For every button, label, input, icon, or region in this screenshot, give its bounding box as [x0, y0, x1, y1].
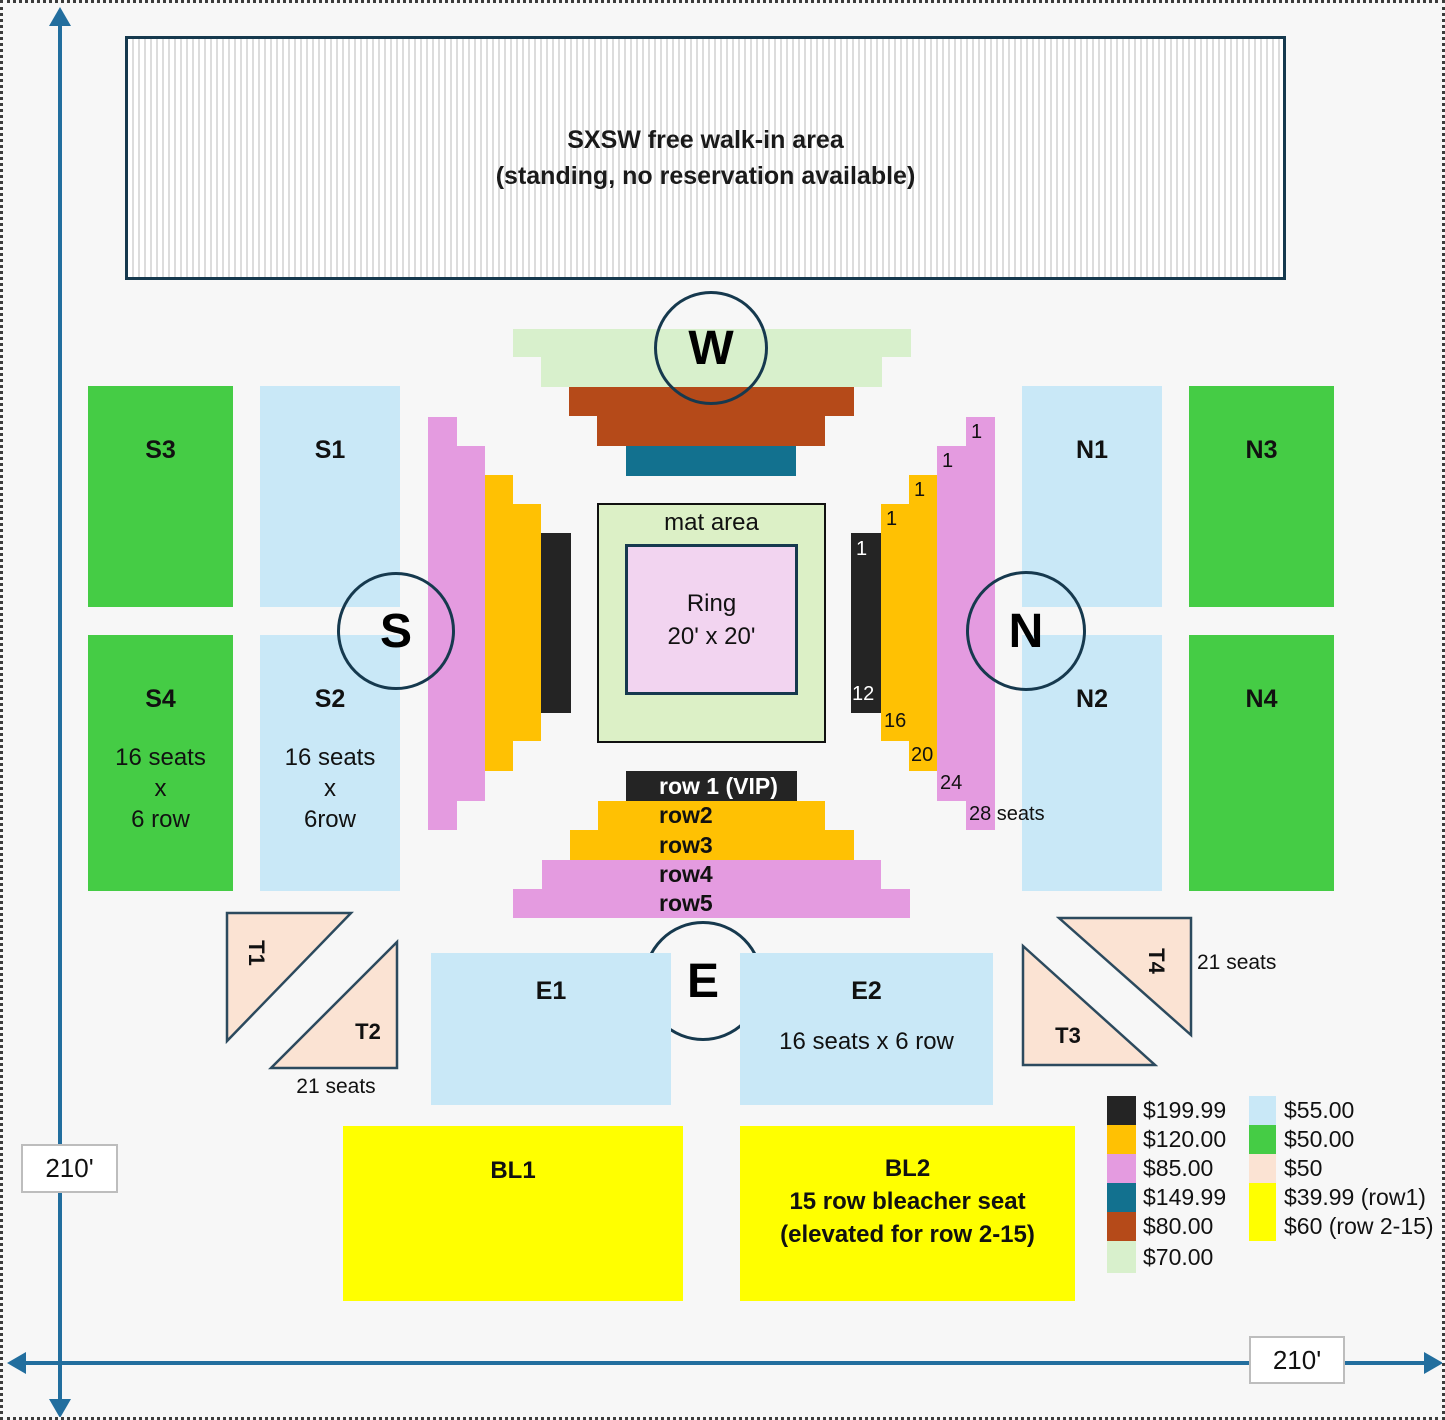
legend-price-5000: $50.00 — [1284, 1125, 1354, 1154]
north-row2-first-seat: 1 — [886, 508, 897, 531]
legend-swatch-8000 — [1107, 1212, 1136, 1241]
section-s2-detail: 16 seats x 6row — [285, 742, 376, 835]
legend-price-bleacher-row1: $39.99 (row1) — [1284, 1183, 1426, 1212]
legend-price-bleacher-rows: $60 (row 2-15) — [1284, 1212, 1434, 1241]
walkin-title: SXSW free walk-in area — [567, 122, 844, 158]
north-compass-label: N — [1009, 604, 1044, 659]
horizontal-dimension-line — [17, 1361, 1433, 1365]
arrow-right-icon — [1424, 1352, 1443, 1374]
section-e2-label: E2 — [851, 977, 882, 1006]
section-e2-detail: 16 seats x 6 row — [779, 1028, 954, 1056]
legend-swatch-5000 — [1249, 1125, 1276, 1154]
t2-seat-count: 21 seats — [281, 1075, 391, 1099]
ring: Ring 20' x 20' — [625, 544, 798, 695]
triangle-t4-shape — [1056, 915, 1194, 1038]
triangle-t4-label: T4 — [1141, 941, 1169, 981]
legend-price-5500: $55.00 — [1284, 1096, 1354, 1125]
south-compass-label: S — [380, 604, 412, 659]
arrow-down-icon — [49, 1399, 71, 1418]
t4-seat-count: 21 seats — [1197, 951, 1276, 975]
section-bl1-label: BL1 — [490, 1154, 535, 1187]
section-s1-label: S1 — [315, 436, 346, 465]
north-row1-first-seat: 1 — [856, 538, 867, 561]
horizontal-dimension-label: 210' — [1249, 1336, 1345, 1384]
legend-price-7000: $70.00 — [1143, 1241, 1213, 1273]
seating-chart: SXSW free walk-in area (standing, no res… — [0, 0, 1445, 1420]
legend-swatch-8500 — [1107, 1154, 1136, 1183]
south-row2-strip — [513, 504, 541, 741]
west-ringside-tier — [626, 446, 796, 476]
legend-swatch-bleacher — [1249, 1183, 1276, 1241]
walkin-area: SXSW free walk-in area (standing, no res… — [125, 36, 1286, 280]
section-n3: N3 — [1189, 386, 1334, 607]
section-n4-label: N4 — [1246, 685, 1278, 714]
walkin-subtitle: (standing, no reservation available) — [496, 158, 916, 194]
section-n4: N4 — [1189, 635, 1334, 891]
north-row3-strip — [909, 475, 937, 771]
section-e1: E1 — [431, 953, 671, 1105]
north-row4-first-seat: 1 — [942, 450, 953, 473]
arrow-left-icon — [7, 1352, 26, 1374]
east-row5-label: row5 — [659, 889, 713, 918]
section-e2: E2 16 seats x 6 row — [740, 953, 993, 1105]
east-row1-label: row 1 (VIP) — [659, 771, 778, 801]
legend-swatch-50 — [1249, 1154, 1276, 1183]
legend-price-12000: $120.00 — [1143, 1125, 1226, 1154]
east-row3-label: row3 — [659, 830, 713, 860]
section-s3-label: S3 — [145, 436, 176, 465]
west-compass-circle: W — [654, 291, 768, 405]
legend-swatch-7000 — [1107, 1241, 1136, 1273]
section-n1-label: N1 — [1076, 436, 1108, 465]
vertical-dimension-label: 210' — [21, 1144, 118, 1193]
legend-swatch-5500 — [1249, 1096, 1276, 1125]
north-row5-last-seat: 28 seats — [969, 803, 1045, 826]
section-n3-label: N3 — [1246, 436, 1278, 465]
section-s4-detail: 16 seats x 6 row — [115, 742, 206, 835]
triangle-t2-label: T2 — [343, 1019, 393, 1045]
arrow-up-icon — [49, 7, 71, 26]
south-row4-strip — [457, 446, 485, 801]
west-compass-label: W — [688, 321, 733, 376]
east-compass-label: E — [687, 954, 719, 1009]
legend-price-8000: $80.00 — [1143, 1212, 1213, 1241]
section-s4: S4 16 seats x 6 row — [88, 635, 233, 891]
south-compass-circle: S — [337, 572, 455, 690]
legend-swatch-14999 — [1107, 1183, 1136, 1212]
section-bl1: BL1 — [343, 1126, 683, 1301]
section-s3: S3 — [88, 386, 233, 607]
legend-price-50: $50 — [1284, 1154, 1322, 1183]
north-compass-circle: N — [966, 571, 1086, 691]
mat-area-label: mat area — [599, 509, 824, 537]
ring-size-label: 20' x 20' — [668, 620, 756, 653]
north-row4-strip — [937, 446, 966, 801]
north-row5-first-seat: 1 — [971, 421, 982, 444]
section-s4-label: S4 — [145, 685, 176, 714]
triangle-t3-label: T3 — [1043, 1023, 1093, 1049]
legend-price-14999: $149.99 — [1143, 1183, 1226, 1212]
east-row2-label: row2 — [659, 801, 713, 830]
west-tier-4 — [597, 416, 825, 446]
north-row3-first-seat: 1 — [914, 479, 925, 502]
triangle-t1-label: T1 — [241, 933, 269, 973]
legend-price-8500: $85.00 — [1143, 1154, 1213, 1183]
north-row3-last-seat: 20 — [911, 744, 933, 767]
south-row3-strip — [485, 475, 513, 771]
section-bl2: BL2 15 row bleacher seat (elevated for r… — [740, 1126, 1075, 1301]
east-row4-label: row4 — [659, 860, 713, 889]
north-row4-last-seat: 24 — [940, 772, 962, 795]
section-e1-label: E1 — [536, 977, 567, 1006]
north-row2-last-seat: 16 — [884, 710, 906, 733]
vertical-dimension-line — [58, 17, 62, 1401]
north-row1-last-seat: 12 — [852, 683, 874, 706]
triangle-t2-shape — [268, 939, 400, 1071]
section-n2-label: N2 — [1076, 685, 1108, 714]
south-row1-strip — [541, 533, 571, 713]
section-s2-label: S2 — [315, 685, 346, 714]
north-row2-strip — [881, 504, 909, 741]
section-bl2-label: BL2 15 row bleacher seat (elevated for r… — [780, 1152, 1035, 1251]
ring-label: Ring — [687, 587, 736, 620]
legend-price-19999: $199.99 — [1143, 1096, 1226, 1125]
legend-swatch-12000 — [1107, 1125, 1136, 1154]
legend-swatch-19999 — [1107, 1096, 1136, 1125]
